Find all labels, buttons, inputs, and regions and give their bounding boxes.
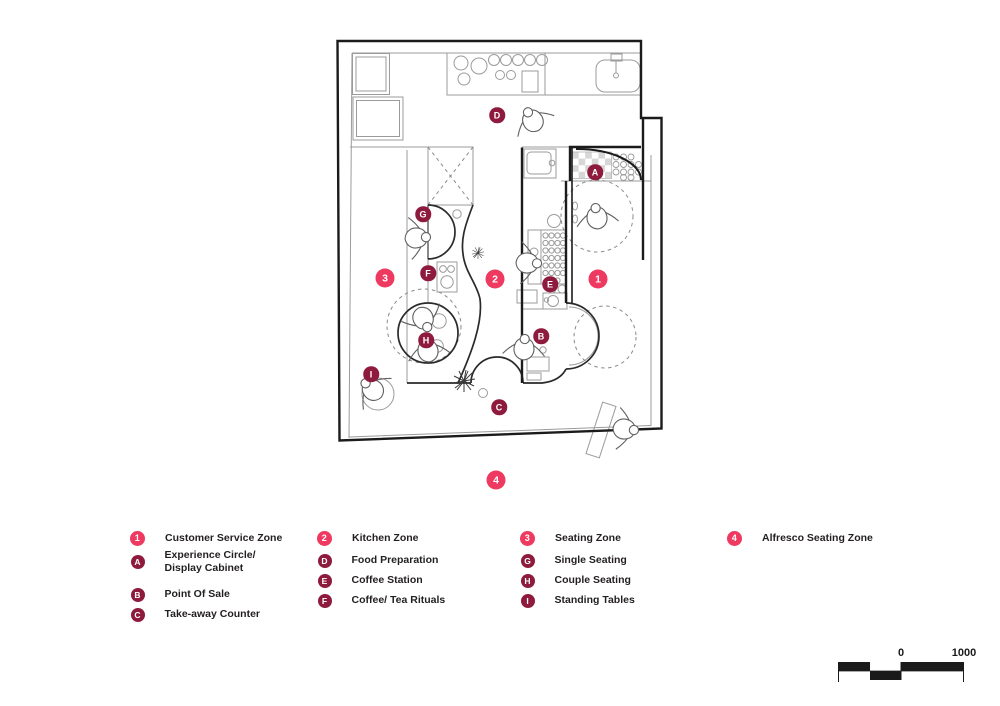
legend-label: Take-away Counter [165,608,261,622]
legend-row-zone3: 3 Seating Zone [520,531,621,547]
island-counter-curve [458,205,480,383]
legend-label: Standing Tables [555,594,635,608]
legend-row-item-d: D Food Preparation [318,554,439,568]
takeaway-counter [471,357,523,383]
pos-counter-bump [566,303,599,369]
person-experience-circle [574,201,619,232]
person-barista [515,242,542,285]
legend-row-item-i: I Standing Tables [521,594,635,608]
legend-label: Coffee Station [352,574,423,588]
legend-row-item-e: E Coffee Station [318,574,423,588]
legend-label: Experience Circle/ [165,549,256,561]
legend-badge-e: E [318,574,332,588]
legend-label: Food Preparation [352,554,439,568]
legend-badge-i: I [521,594,535,608]
legend-row-item-g: G Single Seating [521,554,627,568]
legend-row-zone2: 2 Kitchen Zone [317,531,419,547]
legend-badge-a: A [131,555,145,569]
legend-badge-g: G [521,554,535,568]
display-cabinet-pattern [572,152,642,181]
legend-badge-b: B [131,588,145,602]
legend-badge-4: 4 [727,531,743,547]
legend-label: Couple Seating [555,574,631,588]
legend-label: Coffee/ Tea Rituals [352,594,446,608]
appliance-box [353,97,403,140]
scale-zero-label: 0 [898,647,904,659]
legend-row-zone4: 4 Alfresco Seating Zone [727,531,873,547]
scale-max-label: 1000 [952,647,976,659]
interior-lines [349,53,651,438]
legend-row-item-b: B Point Of Sale [131,588,230,602]
legend-label-line2: Display Cabinet [165,562,244,574]
fridge [353,54,390,95]
legend-badge-d: D [318,554,332,568]
legend-badge-2: 2 [317,531,333,547]
legend-row-item-h: H Couple Seating [521,574,631,588]
scale-bar: 0 1000 [830,643,990,688]
legend-row-zone1: 1 Customer Service Zone [130,531,283,547]
legend-label: Single Seating [555,554,627,568]
legend-label: Point Of Sale [165,588,230,602]
single-seat-booth [428,205,455,259]
legend-badge-1: 1 [130,531,146,547]
legend-label: Alfresco Seating Zone [762,532,873,546]
legend-badge-h: H [521,574,535,588]
legend-badge-f: F [318,594,332,608]
small-plant-icon [472,247,484,259]
tea-station [437,262,457,292]
legend-row-item-f: F Coffee/ Tea Rituals [318,594,446,608]
legend-badge-3: 3 [520,531,536,547]
legend-label: Seating Zone [555,532,621,546]
legend-label: Customer Service Zone [165,532,282,546]
legend-row-item-a: A Experience Circle/ Display Cabinet [131,548,256,576]
legend-label: Kitchen Zone [352,532,419,546]
legend-badge-c: C [131,608,145,622]
floor-plan-page: { "colors": { "zone_number_marker": "#EE… [0,0,1000,706]
legend-row-item-c: C Take-away Counter [131,608,261,622]
person-food-prep [508,98,557,141]
stool [548,215,561,228]
fixtures [353,53,641,458]
person-alfresco [611,407,641,451]
